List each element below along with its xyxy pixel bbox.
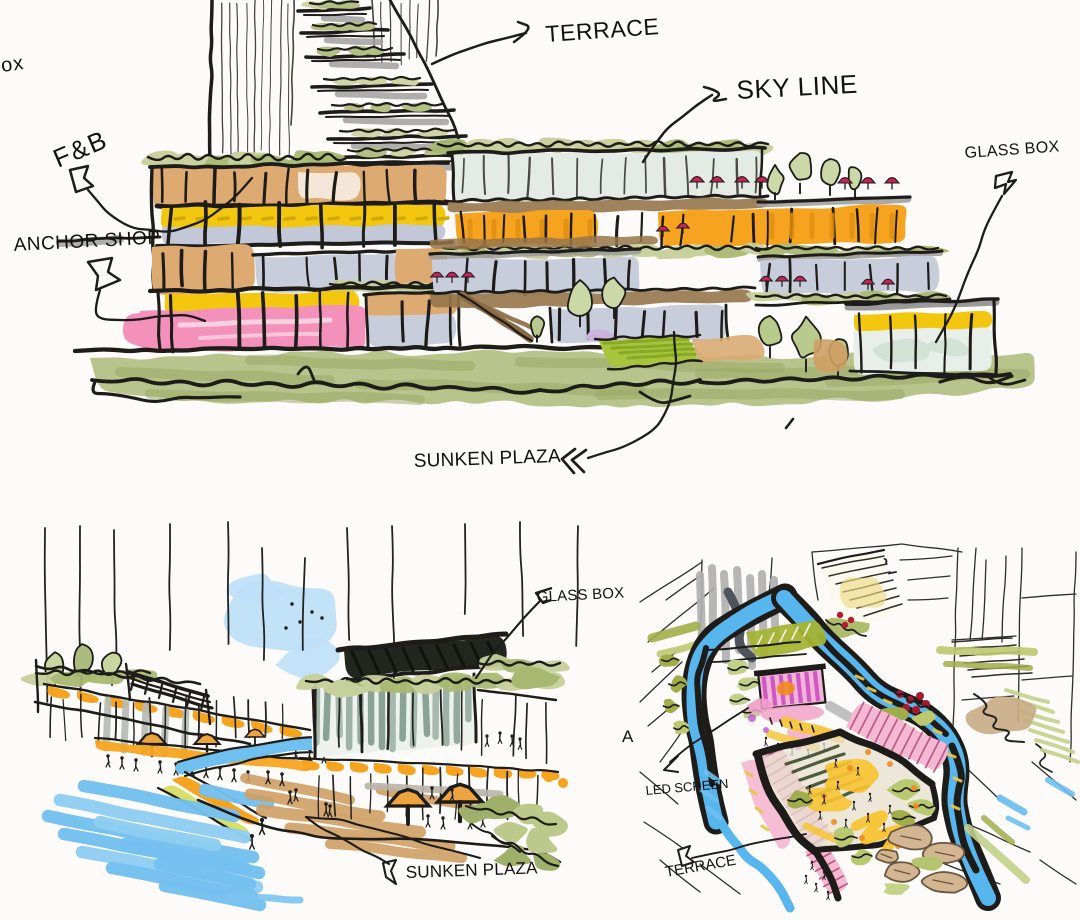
svg-text:SKY LINE: SKY LINE <box>736 69 859 105</box>
svg-text:A: A <box>622 727 634 746</box>
svg-text:ox: ox <box>0 52 26 77</box>
